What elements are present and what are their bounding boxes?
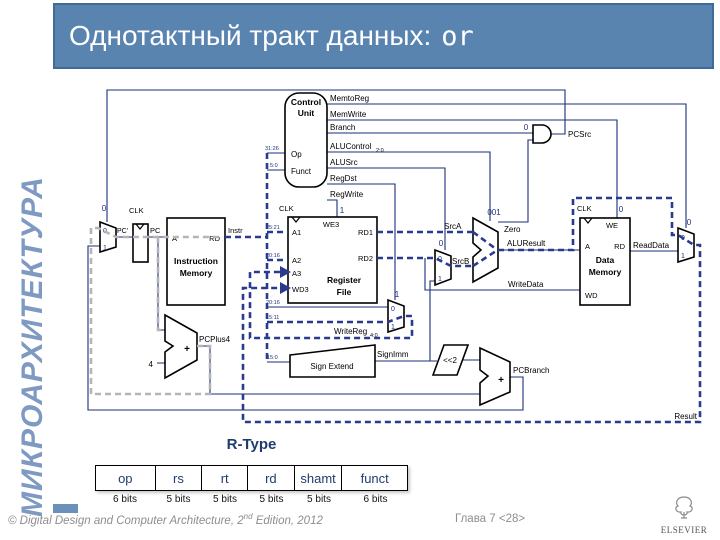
- pc-register: [133, 224, 148, 262]
- regfile-a1-port: A1: [292, 228, 301, 237]
- dmem-a-port: A: [585, 242, 590, 251]
- dmem-rd-port: RD: [614, 242, 625, 251]
- alusrc-label: ALUSrc: [330, 158, 358, 167]
- imem-name-1: Instruction: [174, 256, 218, 266]
- rtype-field-op: op: [96, 466, 156, 490]
- memtoreg-label: MemtoReg: [330, 94, 369, 103]
- regwrite-value: 1: [340, 206, 345, 215]
- pcplus4-label: PCPlus4: [199, 335, 231, 344]
- branch-label: Branch: [330, 123, 355, 132]
- imem-rd-port: RD: [209, 234, 220, 243]
- pcsrc-label: PCSrc: [568, 130, 591, 139]
- rtype-bits-op: 6 bits: [95, 494, 155, 505]
- regwrite-wire: [327, 200, 337, 218]
- rtype-field-rt: rt: [202, 466, 248, 490]
- four-constant: 4: [149, 360, 154, 369]
- zero-wire: [498, 140, 533, 222]
- clk-label-pc: CLK: [129, 206, 144, 215]
- edition-post: Edition, 2012: [253, 515, 323, 527]
- pc-mux-in1: 1: [103, 245, 107, 252]
- dmem-wd-port: WD: [585, 291, 598, 300]
- regdst-label: RegDst: [330, 174, 357, 183]
- clk-label-datamem: CLK: [577, 204, 592, 213]
- memwrite-label: MemWrite: [330, 110, 367, 119]
- pcplus4-adder-shape: [165, 315, 197, 378]
- control-unit-name-2: Unit: [298, 108, 315, 118]
- footer-copyright: © Digital Design and Computer Architectu…: [8, 512, 323, 527]
- dmem-name-2: Memory: [589, 267, 622, 277]
- writedata-label: WriteData: [508, 280, 544, 289]
- regfile-name-1: Register: [327, 275, 362, 285]
- funct-bit-range: 5:0: [270, 163, 278, 169]
- writereg-label: WriteReg: [334, 327, 367, 336]
- clk-label-regfile: CLK: [279, 204, 294, 213]
- instr-bus-highlight: [225, 153, 267, 362]
- srcb-label: SrcB: [452, 257, 469, 266]
- memtoreg-value: 0: [687, 218, 692, 227]
- regfile-rd1-port: RD1: [358, 228, 373, 237]
- branch-and-gate: [533, 125, 551, 143]
- rtype-bits-shamt: 5 bits: [295, 494, 343, 505]
- dmem-we-port: WE: [606, 221, 618, 230]
- alucontrol-value: 001: [487, 208, 501, 217]
- control-unit-name-1: Control: [291, 97, 321, 107]
- pc-highlight-drop: [158, 237, 164, 330]
- rtype-bits-rd: 5 bits: [248, 494, 295, 505]
- alu-shape: [473, 218, 498, 282]
- book-title: Digital Design and Computer Architecture: [20, 515, 231, 527]
- regfile-rd2-port: RD2: [358, 254, 373, 263]
- funct-port: Funct: [291, 167, 312, 176]
- regdst-value: 1: [395, 290, 400, 299]
- rtype-table: op rs rt rd shamt funct: [95, 465, 408, 491]
- rtype-title: R-Type: [95, 436, 408, 453]
- rtype-field-rs: rs: [156, 466, 203, 490]
- pcbranch-label: PCBranch: [513, 366, 549, 375]
- regfile-a2-port: A2: [292, 256, 301, 265]
- edition-superscript: nd: [244, 512, 253, 521]
- rtype-bit-widths: 6 bits 5 bits 5 bits 5 bits 5 bits 6 bit…: [95, 494, 408, 505]
- regfile-wd3-port: WD3: [292, 285, 309, 294]
- pcplus4-plus-sign: +: [184, 344, 190, 355]
- elsevier-tree-icon: [667, 494, 701, 520]
- signimm-label: SignImm: [377, 350, 409, 359]
- pc-prime-label: PC': [117, 228, 128, 235]
- alusrc-value: 0: [439, 239, 444, 248]
- datapath-diagram: CLK CLK CLK PC' PC Instr A RD Instructio…: [0, 0, 720, 540]
- regdst-mux-in1: 1: [391, 324, 395, 331]
- rtype-field-shamt: shamt: [295, 466, 343, 490]
- alusrc-mux-in1: 1: [438, 276, 442, 283]
- op-bit-range: 31:26: [265, 146, 279, 152]
- memtoreg-wire: [327, 104, 686, 228]
- sign-extend-box: [290, 345, 375, 377]
- rtype-bits-rs: 5 bits: [155, 494, 202, 505]
- dmem-name-1: Data: [596, 255, 615, 265]
- pcsrc-value: 0: [102, 204, 107, 213]
- branch-value: 0: [524, 123, 529, 132]
- imem-name-2: Memory: [180, 268, 213, 278]
- zero-label: Zero: [504, 225, 521, 234]
- rtype-field-funct: funct: [342, 466, 407, 490]
- pc-label: PC: [150, 226, 161, 235]
- edition-pre: , 2: [231, 515, 244, 527]
- rtype-bits-funct: 6 bits: [343, 494, 408, 505]
- alucontrol-label: ALUControl: [330, 142, 372, 151]
- elsevier-label: ELSEVIER: [650, 525, 718, 535]
- shift-left-2-label: <<2: [443, 356, 457, 365]
- rtype-field-rd: rd: [248, 466, 295, 490]
- memtoreg-mux-in1: 1: [681, 253, 685, 260]
- imem-a-port: A: [172, 234, 177, 243]
- readdata-label: ReadData: [633, 241, 670, 250]
- memwrite-value: 0: [619, 205, 624, 214]
- op-port: Op: [291, 150, 302, 159]
- alucontrol-subscript: 2:0: [376, 148, 384, 154]
- sign-extend-name: Sign Extend: [310, 362, 353, 371]
- rtype-bits-rt: 5 bits: [202, 494, 248, 505]
- slide: МИКРОАРХИТЕКТУРА Однотактный тракт данны…: [0, 0, 720, 540]
- copyright-symbol: ©: [8, 515, 20, 527]
- regfile-a3-port: A3: [292, 269, 301, 278]
- publisher-logo: ELSEVIER: [650, 494, 718, 535]
- result-label: Result: [674, 412, 697, 421]
- regwrite-label: RegWrite: [330, 190, 364, 199]
- pcbranch-adder-shape: [480, 348, 510, 405]
- imm-bit-range: 15:0: [267, 355, 278, 361]
- regfile-we3-port: WE3: [323, 220, 339, 229]
- regfile-name-2: File: [337, 287, 352, 297]
- regdst-mux-in0: 0: [391, 306, 395, 313]
- aluresult-label: ALUResult: [507, 239, 546, 248]
- srca-label: SrcA: [444, 222, 462, 231]
- pcbranch-plus-sign: +: [498, 375, 504, 386]
- instr-label: Instr: [228, 226, 243, 235]
- footer-chapter: Глава 7 <28>: [455, 513, 525, 525]
